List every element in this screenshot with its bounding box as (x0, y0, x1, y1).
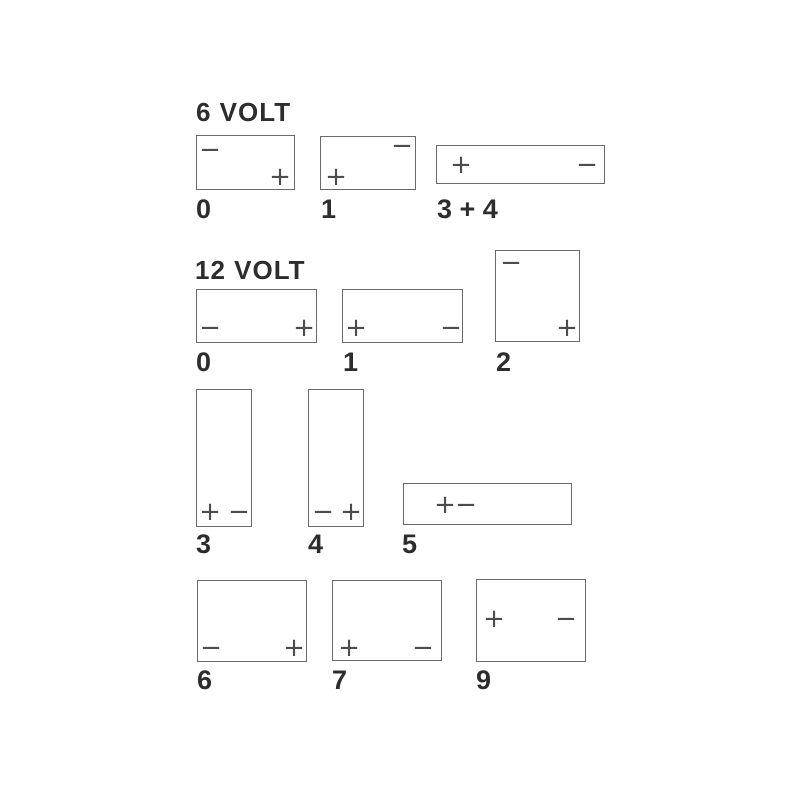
plus-terminal-icon: + (268, 165, 292, 189)
minus-terminal-icon: − (554, 607, 578, 631)
plus-terminal-icon: + (344, 316, 368, 340)
minus-terminal-icon: − (198, 316, 222, 340)
battery-label-12v-6: 6 (197, 667, 212, 694)
battery-label-12v-9: 9 (476, 667, 491, 694)
battery-label-6v-1: 1 (321, 196, 336, 223)
battery-box-12v-2: − + (495, 250, 580, 342)
minus-terminal-icon: − (227, 500, 251, 524)
battery-box-6v-3-4: + − (436, 145, 605, 184)
battery-label-12v-1: 1 (343, 349, 358, 376)
battery-label-12v-3: 3 (196, 531, 211, 558)
battery-box-6v-1: − + (320, 136, 416, 190)
battery-box-12v-5: + − (403, 483, 572, 525)
battery-label-6v-3-4: 3 + 4 (437, 196, 498, 223)
section-title-12-volt: 12 VOLT (195, 257, 306, 283)
battery-box-12v-7: + − (332, 580, 442, 661)
plus-terminal-icon: + (482, 607, 506, 631)
plus-terminal-icon: + (555, 316, 579, 340)
battery-box-12v-3: + − (196, 389, 252, 527)
plus-terminal-icon: + (449, 153, 473, 177)
minus-terminal-icon: − (499, 251, 523, 275)
minus-terminal-icon: − (198, 138, 222, 162)
battery-label-12v-2: 2 (496, 349, 511, 376)
plus-terminal-icon: + (324, 165, 348, 189)
battery-box-12v-4: − + (308, 389, 364, 527)
minus-terminal-icon: − (199, 636, 223, 660)
section-title-6-volt: 6 VOLT (196, 99, 291, 125)
battery-box-12v-6: − + (197, 580, 307, 662)
minus-terminal-icon: − (390, 134, 414, 158)
battery-label-12v-4: 4 (308, 531, 323, 558)
battery-label-6v-0: 0 (196, 196, 211, 223)
minus-terminal-icon: − (575, 153, 599, 177)
minus-terminal-icon: − (454, 493, 478, 517)
battery-box-12v-0: − + (196, 289, 317, 343)
battery-label-12v-5: 5 (402, 531, 417, 558)
plus-terminal-icon: + (282, 636, 306, 660)
battery-box-12v-1: + − (342, 289, 463, 343)
minus-terminal-icon: − (439, 316, 463, 340)
battery-label-12v-0: 0 (196, 349, 211, 376)
plus-terminal-icon: + (337, 636, 361, 660)
plus-terminal-icon: + (339, 500, 363, 524)
battery-box-6v-0: − + (196, 135, 295, 190)
plus-terminal-icon: + (198, 500, 222, 524)
minus-terminal-icon: − (411, 636, 435, 660)
battery-label-12v-7: 7 (332, 667, 347, 694)
battery-terminal-layout-diagram: 6 VOLT − + 0 − + 1 + − 3 + 4 12 VOLT − +… (0, 0, 800, 800)
battery-box-12v-9: + − (476, 579, 586, 662)
plus-terminal-icon: + (292, 316, 316, 340)
minus-terminal-icon: − (311, 500, 335, 524)
